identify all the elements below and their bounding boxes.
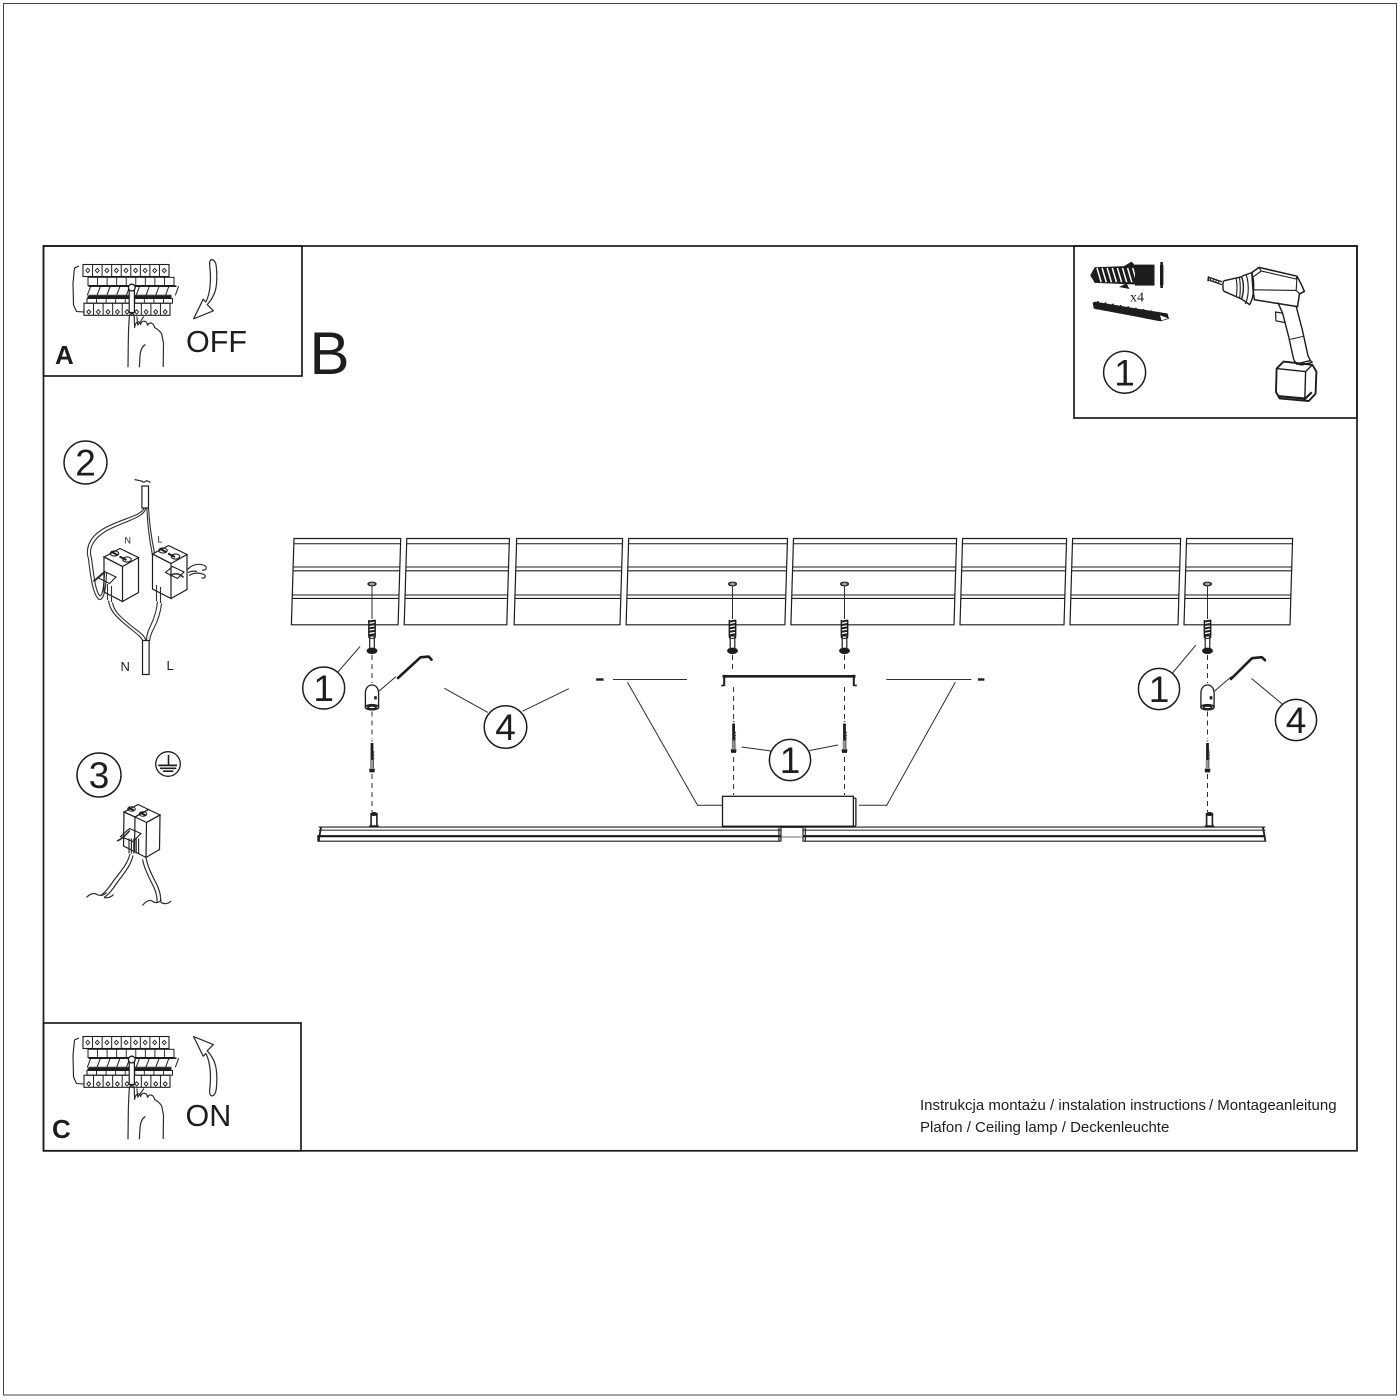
svg-text:1: 1 (313, 668, 334, 709)
svg-text:1: 1 (1114, 353, 1135, 394)
svg-text:C: C (52, 1114, 71, 1144)
svg-text:OFF: OFF (186, 325, 247, 359)
svg-text:L: L (167, 658, 174, 673)
svg-text:1: 1 (780, 740, 801, 781)
svg-text:4: 4 (495, 707, 516, 748)
svg-text:A: A (55, 340, 74, 370)
svg-text:4: 4 (1286, 700, 1307, 741)
svg-text:L: L (158, 535, 163, 545)
svg-text:1: 1 (1149, 669, 1170, 710)
svg-text:3: 3 (89, 755, 110, 796)
svg-text:ON: ON (186, 1099, 232, 1133)
svg-text:B: B (310, 320, 350, 387)
svg-text:x4: x4 (1130, 291, 1144, 306)
svg-text:Instrukcja montażu / instalati: Instrukcja montażu / instalation instruc… (920, 1097, 1337, 1114)
svg-text:Plafon / Ceiling lamp / Decken: Plafon / Ceiling lamp / Deckenleuchte (920, 1119, 1169, 1136)
svg-text:N: N (125, 536, 132, 546)
svg-text:2: 2 (75, 443, 96, 484)
svg-text:N: N (121, 659, 130, 674)
